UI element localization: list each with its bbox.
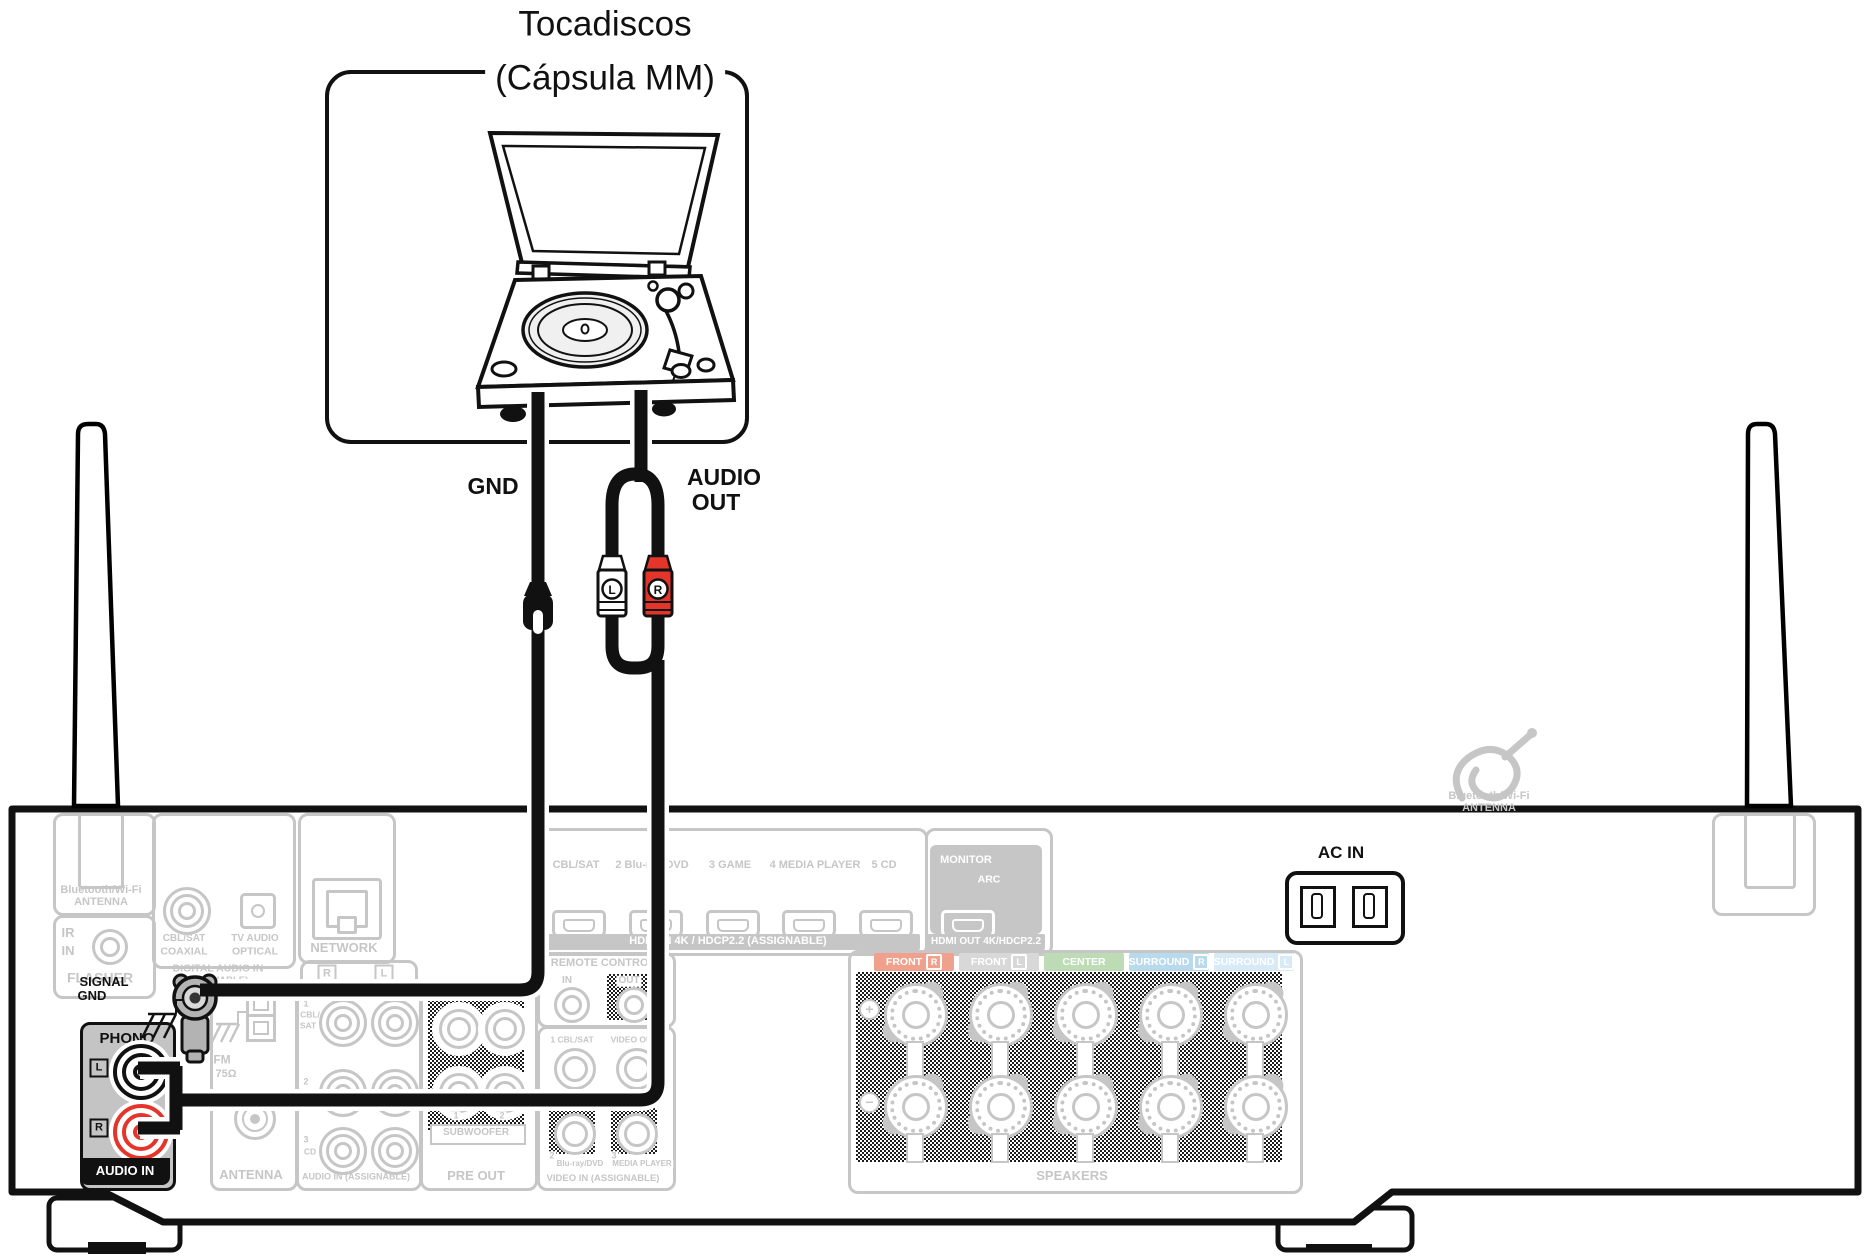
right-antenna-mast bbox=[1747, 424, 1791, 806]
rca-plug-left: L bbox=[598, 556, 626, 616]
plug-l-letter: L bbox=[608, 583, 615, 597]
plug-r-letter: R bbox=[654, 583, 663, 597]
turntable-foot-right bbox=[652, 402, 676, 417]
spade-terminal bbox=[523, 582, 553, 634]
coiled-antenna-icon bbox=[1456, 736, 1529, 798]
left-antenna-mast bbox=[74, 424, 118, 806]
coiled-antenna-tip bbox=[1527, 728, 1537, 738]
cables-and-art: L R bbox=[0, 0, 1870, 1256]
am-ground-symbol bbox=[212, 1012, 246, 1042]
gnd-cable bbox=[200, 392, 538, 990]
audio-cable-lower bbox=[176, 660, 658, 1100]
rca-plug-right: R bbox=[644, 556, 672, 616]
lid-hinge-right bbox=[649, 262, 665, 275]
tonearm-counterweight bbox=[679, 284, 693, 298]
cables bbox=[138, 390, 658, 1130]
tonearm-pivot bbox=[657, 289, 679, 311]
lid-hinge-left bbox=[533, 266, 549, 279]
speed-knob bbox=[492, 362, 516, 376]
connection-diagram: Bluetooth/Wi-Fi ANTENNA IR IN FLASHER CB… bbox=[0, 0, 1870, 1256]
cable-halos bbox=[140, 390, 658, 1130]
turntable-illustration bbox=[478, 133, 734, 422]
turntable-foot-left bbox=[500, 406, 526, 422]
ground-symbol bbox=[142, 1000, 182, 1038]
